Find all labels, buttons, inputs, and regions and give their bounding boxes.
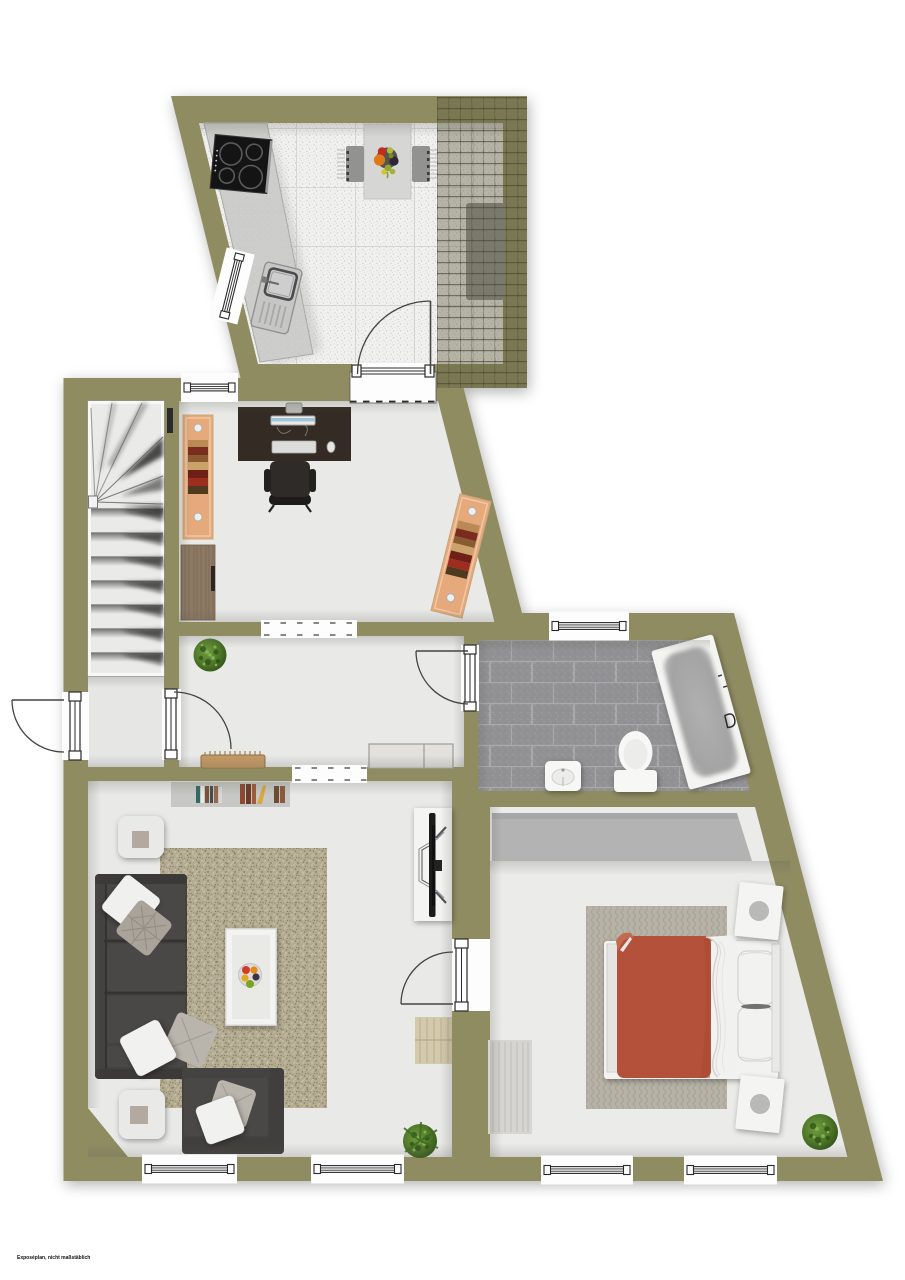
svg-text:Exposéplan, nicht maßstäblich: Exposéplan, nicht maßstäblich	[17, 1255, 90, 1261]
